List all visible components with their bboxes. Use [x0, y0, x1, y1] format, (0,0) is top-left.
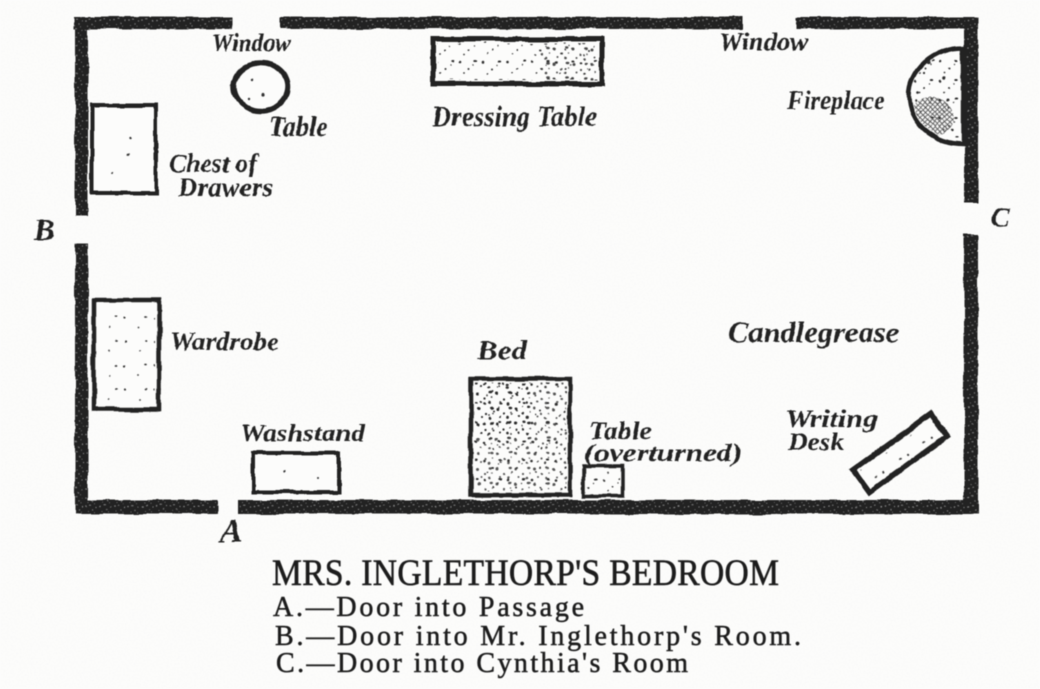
- svg-text:Desk: Desk: [787, 429, 845, 456]
- svg-text:(overturned): (overturned): [584, 440, 742, 467]
- svg-text:Window: Window: [719, 29, 808, 56]
- svg-text:A: A: [218, 513, 243, 550]
- svg-text:Table: Table: [269, 111, 328, 143]
- svg-text:Bed: Bed: [476, 336, 528, 365]
- svg-text:Fireplace: Fireplace: [786, 86, 885, 115]
- svg-text:MRS. INGLETHORP'S BEDROOM: MRS. INGLETHORP'S BEDROOM: [272, 553, 779, 594]
- svg-text:Dressing Table: Dressing Table: [431, 101, 597, 133]
- svg-text:B: B: [33, 212, 55, 247]
- svg-text:Window: Window: [212, 30, 291, 57]
- svg-text:C: C: [991, 203, 1010, 234]
- svg-text:Drawers: Drawers: [177, 173, 273, 202]
- svg-text:Candlegrease: Candlegrease: [728, 316, 899, 349]
- svg-text:Wardrobe: Wardrobe: [170, 327, 279, 356]
- svg-text:Washstand: Washstand: [240, 421, 366, 447]
- svg-text:C.—Door into Cynthia's Room: C.—Door into Cynthia's Room: [276, 648, 688, 679]
